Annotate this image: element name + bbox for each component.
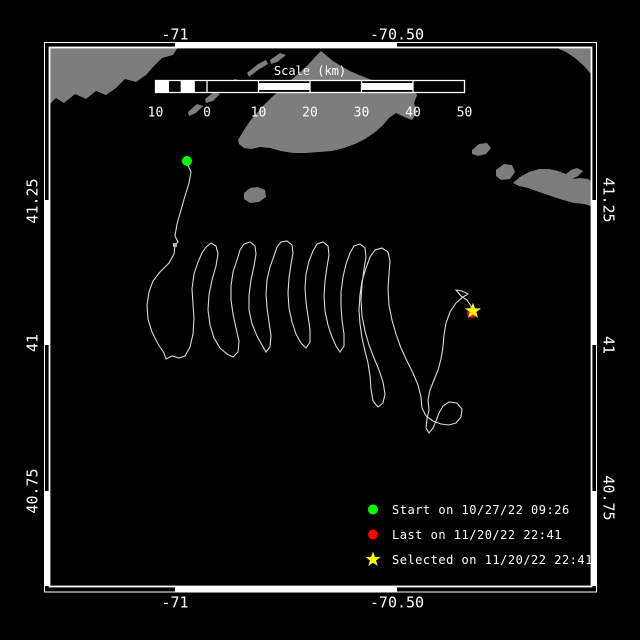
land-mass: [247, 60, 268, 77]
axis-label-right-lat-2: 41: [601, 336, 616, 354]
land-mass: [244, 187, 266, 203]
scale-bar-subblock: [181, 81, 194, 93]
axis-label-right-lat-3: 40.75: [601, 475, 616, 520]
legend-marker-2-star-icon: [365, 552, 380, 566]
axis-label-right-lat-1: 41.25: [601, 177, 616, 222]
scale-tick-label-3: 20: [302, 107, 318, 120]
land-mass: [270, 53, 286, 64]
axis-label-top-lon-2: -70.50: [370, 28, 424, 43]
tracking-map-window: -71 -70.50 -71 -70.50 41.25 41 40.75 41.…: [0, 0, 640, 640]
map-frame-zebra-segment: [175, 43, 397, 49]
legend-label-last: Last on 11/20/22 22:41: [392, 529, 562, 541]
legend-marker-0-circle-icon: [368, 505, 378, 515]
map-frame-zebra-segment: [175, 587, 397, 593]
track-waypoint-marker[interactable]: [173, 243, 177, 247]
scale-bar-subblock: [156, 81, 169, 93]
axis-label-top-lon-1: -71: [161, 28, 188, 43]
map-frame-zebra-segment: [592, 200, 598, 345]
map-canvas: [0, 0, 640, 640]
scale-bar-filled-segment: [362, 83, 414, 90]
land-mass: [472, 143, 491, 156]
scale-tick-label-0: 10: [148, 107, 164, 120]
axis-label-left-lat-3: 40.75: [26, 468, 41, 513]
map-frame-zebra-segment: [44, 200, 50, 345]
scale-tick-label-6: 50: [457, 107, 473, 120]
axis-label-left-lat-1: 41.25: [26, 178, 41, 223]
scale-tick-label-4: 30: [354, 107, 370, 120]
land-mass: [559, 47, 591, 74]
scale-bar-title: Scale (km): [274, 65, 346, 77]
axis-label-left-lat-2: 41: [26, 334, 41, 352]
scale-tick-label-2: 10: [251, 107, 267, 120]
legend-label-selected: Selected on 11/20/22 22:41: [392, 554, 593, 566]
start-position-marker[interactable]: [182, 156, 192, 166]
land-mass: [513, 168, 591, 206]
scale-tick-label-5: 40: [405, 107, 421, 120]
map-frame-zebra-segment: [44, 491, 50, 586]
land-mass: [188, 104, 203, 116]
track-path[interactable]: [147, 163, 472, 433]
axis-label-bottom-lon-2: -70.50: [370, 596, 424, 611]
legend-marker-1-circle-icon: [368, 530, 378, 540]
land-mass: [496, 164, 515, 180]
legend-label-start: Start on 10/27/22 09:26: [392, 504, 570, 516]
map-frame-zebra-segment: [592, 491, 598, 586]
scale-bar-filled-segment: [259, 83, 311, 90]
axis-label-bottom-lon-1: -71: [161, 596, 188, 611]
land-mass: [205, 92, 220, 103]
land-mass: [49, 47, 178, 105]
scale-tick-label-1: 0: [203, 107, 211, 120]
